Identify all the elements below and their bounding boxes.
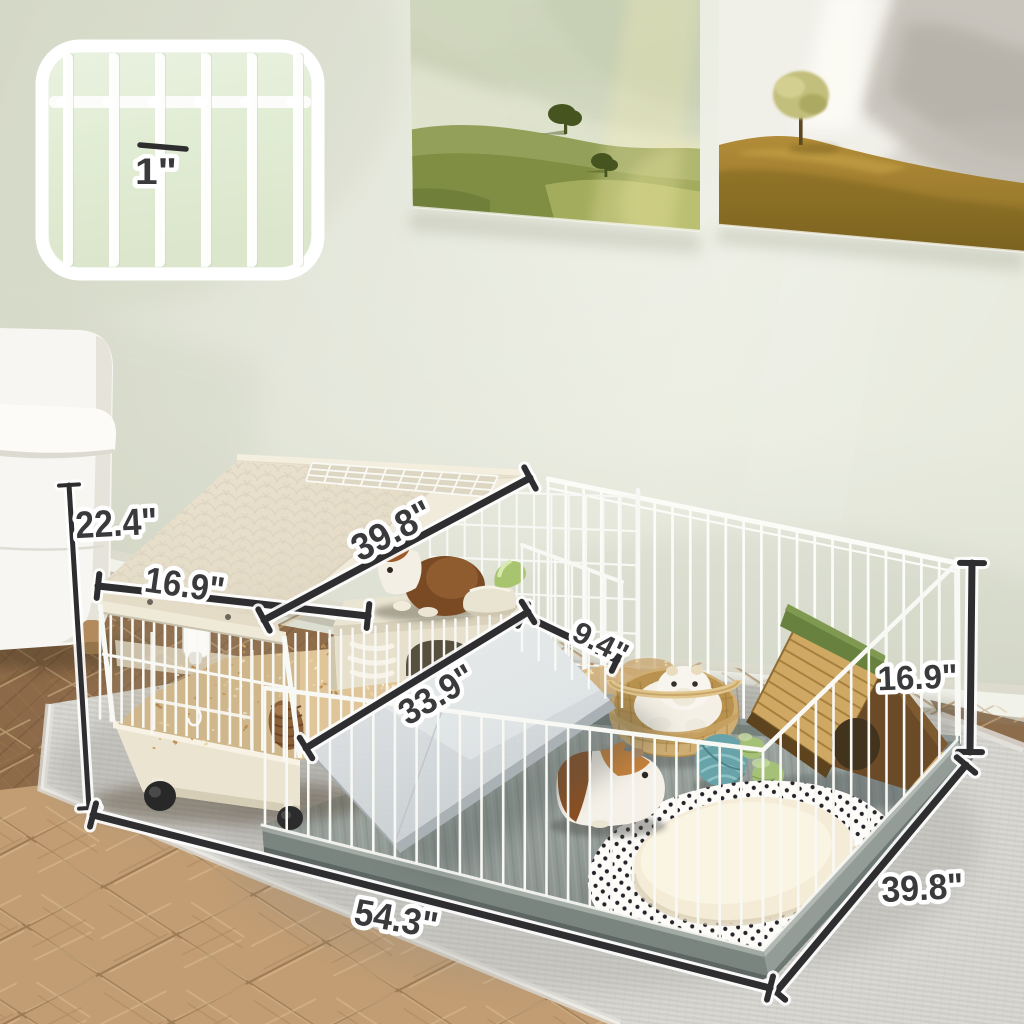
svg-text:16.9": 16.9" [877,658,958,699]
svg-text:22.4": 22.4" [74,501,158,547]
svg-text:1": 1" [135,151,177,192]
svg-text:39.8": 39.8" [880,865,964,910]
